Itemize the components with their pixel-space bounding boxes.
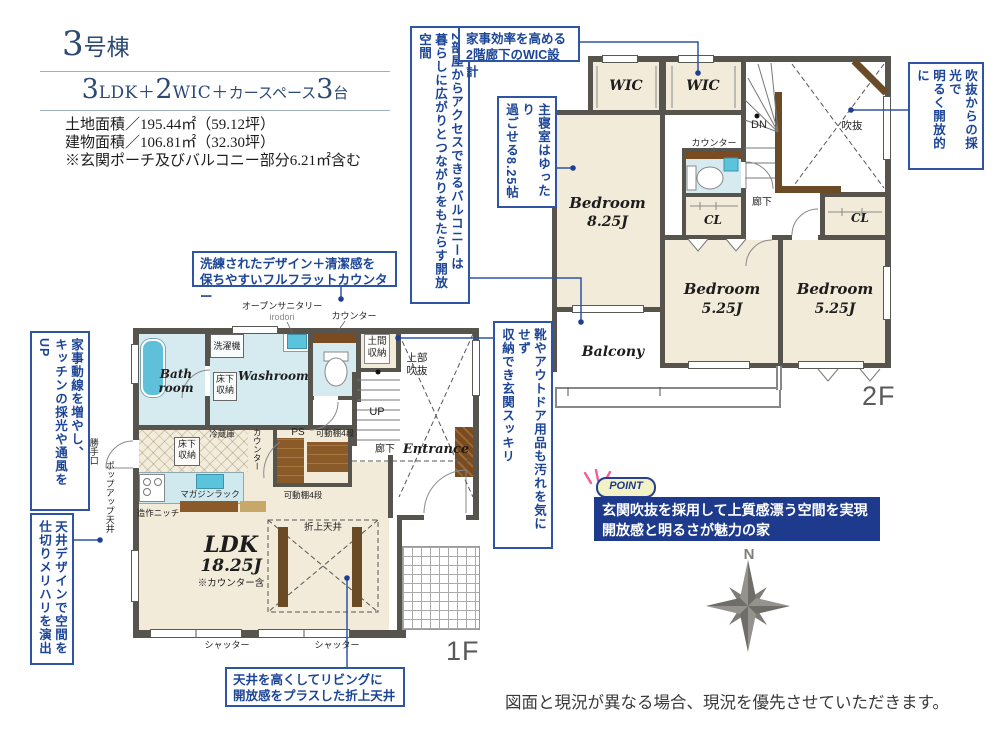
bedroom3-label: Bedroom <box>785 281 885 298</box>
callout-genkan-storage: 靴やアウトドア用品も汚れを気にせず 収納でき玄関スッキリ <box>493 321 553 549</box>
stair-rail <box>775 92 782 192</box>
stairs-up-label: UP <box>362 406 392 419</box>
land-area: 土地面積／195.44㎡（59.12坪） <box>65 116 275 136</box>
callout-kaji-dosen: 家事動線を増やし、 キッチンの採光や通風をUP <box>30 331 90 511</box>
wall <box>133 328 479 334</box>
room-toilet-2f <box>686 159 741 193</box>
divider <box>40 110 390 111</box>
building-number: 3 <box>62 24 84 64</box>
door-gap <box>792 235 818 240</box>
bedroom-main-size: 8.25J <box>560 214 655 230</box>
washer-label: 洗濯機 <box>210 334 244 358</box>
niche-label: 造作ニッチ <box>134 508 182 518</box>
shelf-label-2: 可動棚4段 <box>276 490 330 500</box>
door-gap <box>205 366 210 396</box>
callout-ceiling-design: 天井デザインで空間を 仕切りメリハリを演出 <box>30 513 74 665</box>
window <box>572 305 644 313</box>
window <box>258 629 350 638</box>
ldk-label: LDK <box>196 533 266 558</box>
magazine-rack-label: マガジンラック <box>178 489 242 499</box>
callout-wic-design: 家事効率を高める 2階廊下のWIC設計 <box>458 26 580 62</box>
room-label-wic2: WIC <box>668 78 738 94</box>
window <box>131 550 139 602</box>
callout-balcony-access: 2部屋からアクセスできるバルコニーは 暮らしに広がりとつながりをもたらす開放空間 <box>410 26 470 304</box>
window <box>131 344 139 384</box>
bedroom2-size: 5.25J <box>672 301 772 317</box>
wall <box>388 455 393 518</box>
divider <box>40 71 390 72</box>
point-box: 玄関吹抜を採用して上質感漂う空間を実現 開放感と明るさが魅力の家 <box>594 497 880 541</box>
wall <box>552 110 745 115</box>
compass-rose-icon <box>706 560 790 652</box>
plan-summary: 3LDK＋2WIC＋カースペース3台 <box>40 74 390 105</box>
callout-master-room: 主寝室はゆったり 過ごせる8.25帖 <box>497 96 557 208</box>
window <box>602 55 638 63</box>
niche-shelf <box>240 501 266 512</box>
point-badge: POINT <box>596 477 656 498</box>
bedroom2-label: Bedroom <box>672 281 772 298</box>
wall <box>308 328 313 428</box>
corridor-label-1f: 廊下 <box>372 444 398 456</box>
window <box>883 96 891 160</box>
fridge-label: 冷蔵庫 <box>206 429 238 439</box>
wall <box>356 368 401 372</box>
wall <box>820 192 825 240</box>
closet-label-mid: CL <box>690 214 736 228</box>
stairs-dn-label: DN <box>746 119 772 132</box>
ps-label: PS <box>286 427 310 439</box>
window <box>472 340 480 396</box>
stair-rail <box>775 186 841 193</box>
upper-void-label: 上部吹抜 <box>404 352 430 377</box>
floor-label-1f: 1F <box>446 636 480 667</box>
bedroom-main-label: Bedroom <box>560 195 655 212</box>
counter-label-1f: カウンター <box>326 311 382 322</box>
balcony-railing <box>555 387 781 408</box>
area-note: ※玄関ポーチ及びバルコニー部分6.21㎡含む <box>65 152 361 172</box>
callout-oriage-ceiling: 天井を高くしてリビングに 開放感をプラスした折上天井 <box>225 667 405 707</box>
bedroom3-size: 5.25J <box>785 301 885 317</box>
underfloor-storage-label-1: 床下収納 <box>213 372 237 401</box>
floorplan-page: 3号棟 3LDK＋2WIC＋カースペース3台 土地面積／195.44㎡（59.1… <box>0 0 1000 743</box>
balcony-label: Balcony <box>568 344 658 360</box>
corridor-label-2f: 廊下 <box>746 197 778 209</box>
shelf-label-1: 可動棚4段 <box>310 428 360 438</box>
void-label: 吹抜 <box>834 120 870 133</box>
wall <box>778 240 783 368</box>
shutter-label-1: シャッター <box>198 640 256 651</box>
ldk-note: ※カウンター含 <box>189 578 273 589</box>
window <box>688 361 750 369</box>
window <box>798 361 864 369</box>
page-title: 3号棟 <box>62 24 130 64</box>
wall <box>396 328 401 372</box>
underfloor-storage-label-2: 床下収納 <box>174 437 200 466</box>
door-gap <box>746 235 772 240</box>
shelf-unit-1 <box>277 438 304 484</box>
balcony-railing <box>776 366 782 390</box>
sanitary-sink <box>287 334 307 349</box>
kitchen-sink <box>196 474 224 489</box>
wall <box>273 430 277 487</box>
floor-label-2f: 2F <box>862 381 896 412</box>
counter-label-kitchen: カウンター <box>252 424 262 474</box>
disclaimer-text: 図面と現況が異なる場合、現況を優先させていただきます。 <box>505 689 949 713</box>
closet-label-right: CL <box>838 212 882 226</box>
window <box>232 326 278 334</box>
wall <box>348 430 352 487</box>
wall <box>659 62 666 110</box>
open-sanitary-sub-label: irodori <box>232 312 332 323</box>
callout-void-light: 吹抜からの採光で 明るく開放的に <box>908 62 984 170</box>
ldk-size: 18.25J <box>192 557 270 577</box>
wall <box>397 515 402 638</box>
window <box>678 55 714 63</box>
wall <box>588 56 593 115</box>
doma-storage-label: 土間収納 <box>364 334 390 364</box>
door-gap <box>741 162 746 188</box>
bathroom-label: Bath room <box>150 368 202 396</box>
porch-tiles <box>402 546 480 630</box>
magazine-rack-shelf <box>180 501 238 512</box>
callout-flat-counter: 洗練されたデザイン＋清潔感を 保ちやすいフルフラットカウンター <box>192 251 397 287</box>
room-label-wic1: WIC <box>594 78 658 94</box>
window <box>150 629 242 638</box>
wall <box>660 115 665 368</box>
compass-north-label: N <box>740 546 758 563</box>
wall <box>273 483 352 487</box>
wall <box>660 235 890 240</box>
counter-label-2f: カウンター <box>684 138 744 149</box>
oriage-label: 折上天井 <box>300 522 346 533</box>
door-gap <box>314 396 338 400</box>
stove <box>139 474 165 502</box>
door-gap <box>133 440 139 468</box>
door-gap <box>424 515 466 520</box>
popup-ceiling-label: ポップアップ天井 <box>104 450 115 544</box>
wall <box>682 193 745 197</box>
shelf-unit-2 <box>307 442 349 472</box>
building-area: 建物面積／106.81㎡（32.30坪） <box>65 134 275 154</box>
washroom-label: Washroom <box>238 370 304 384</box>
shutter-label-2: シャッター <box>308 640 366 651</box>
entrance-label: Entrance <box>402 443 470 458</box>
